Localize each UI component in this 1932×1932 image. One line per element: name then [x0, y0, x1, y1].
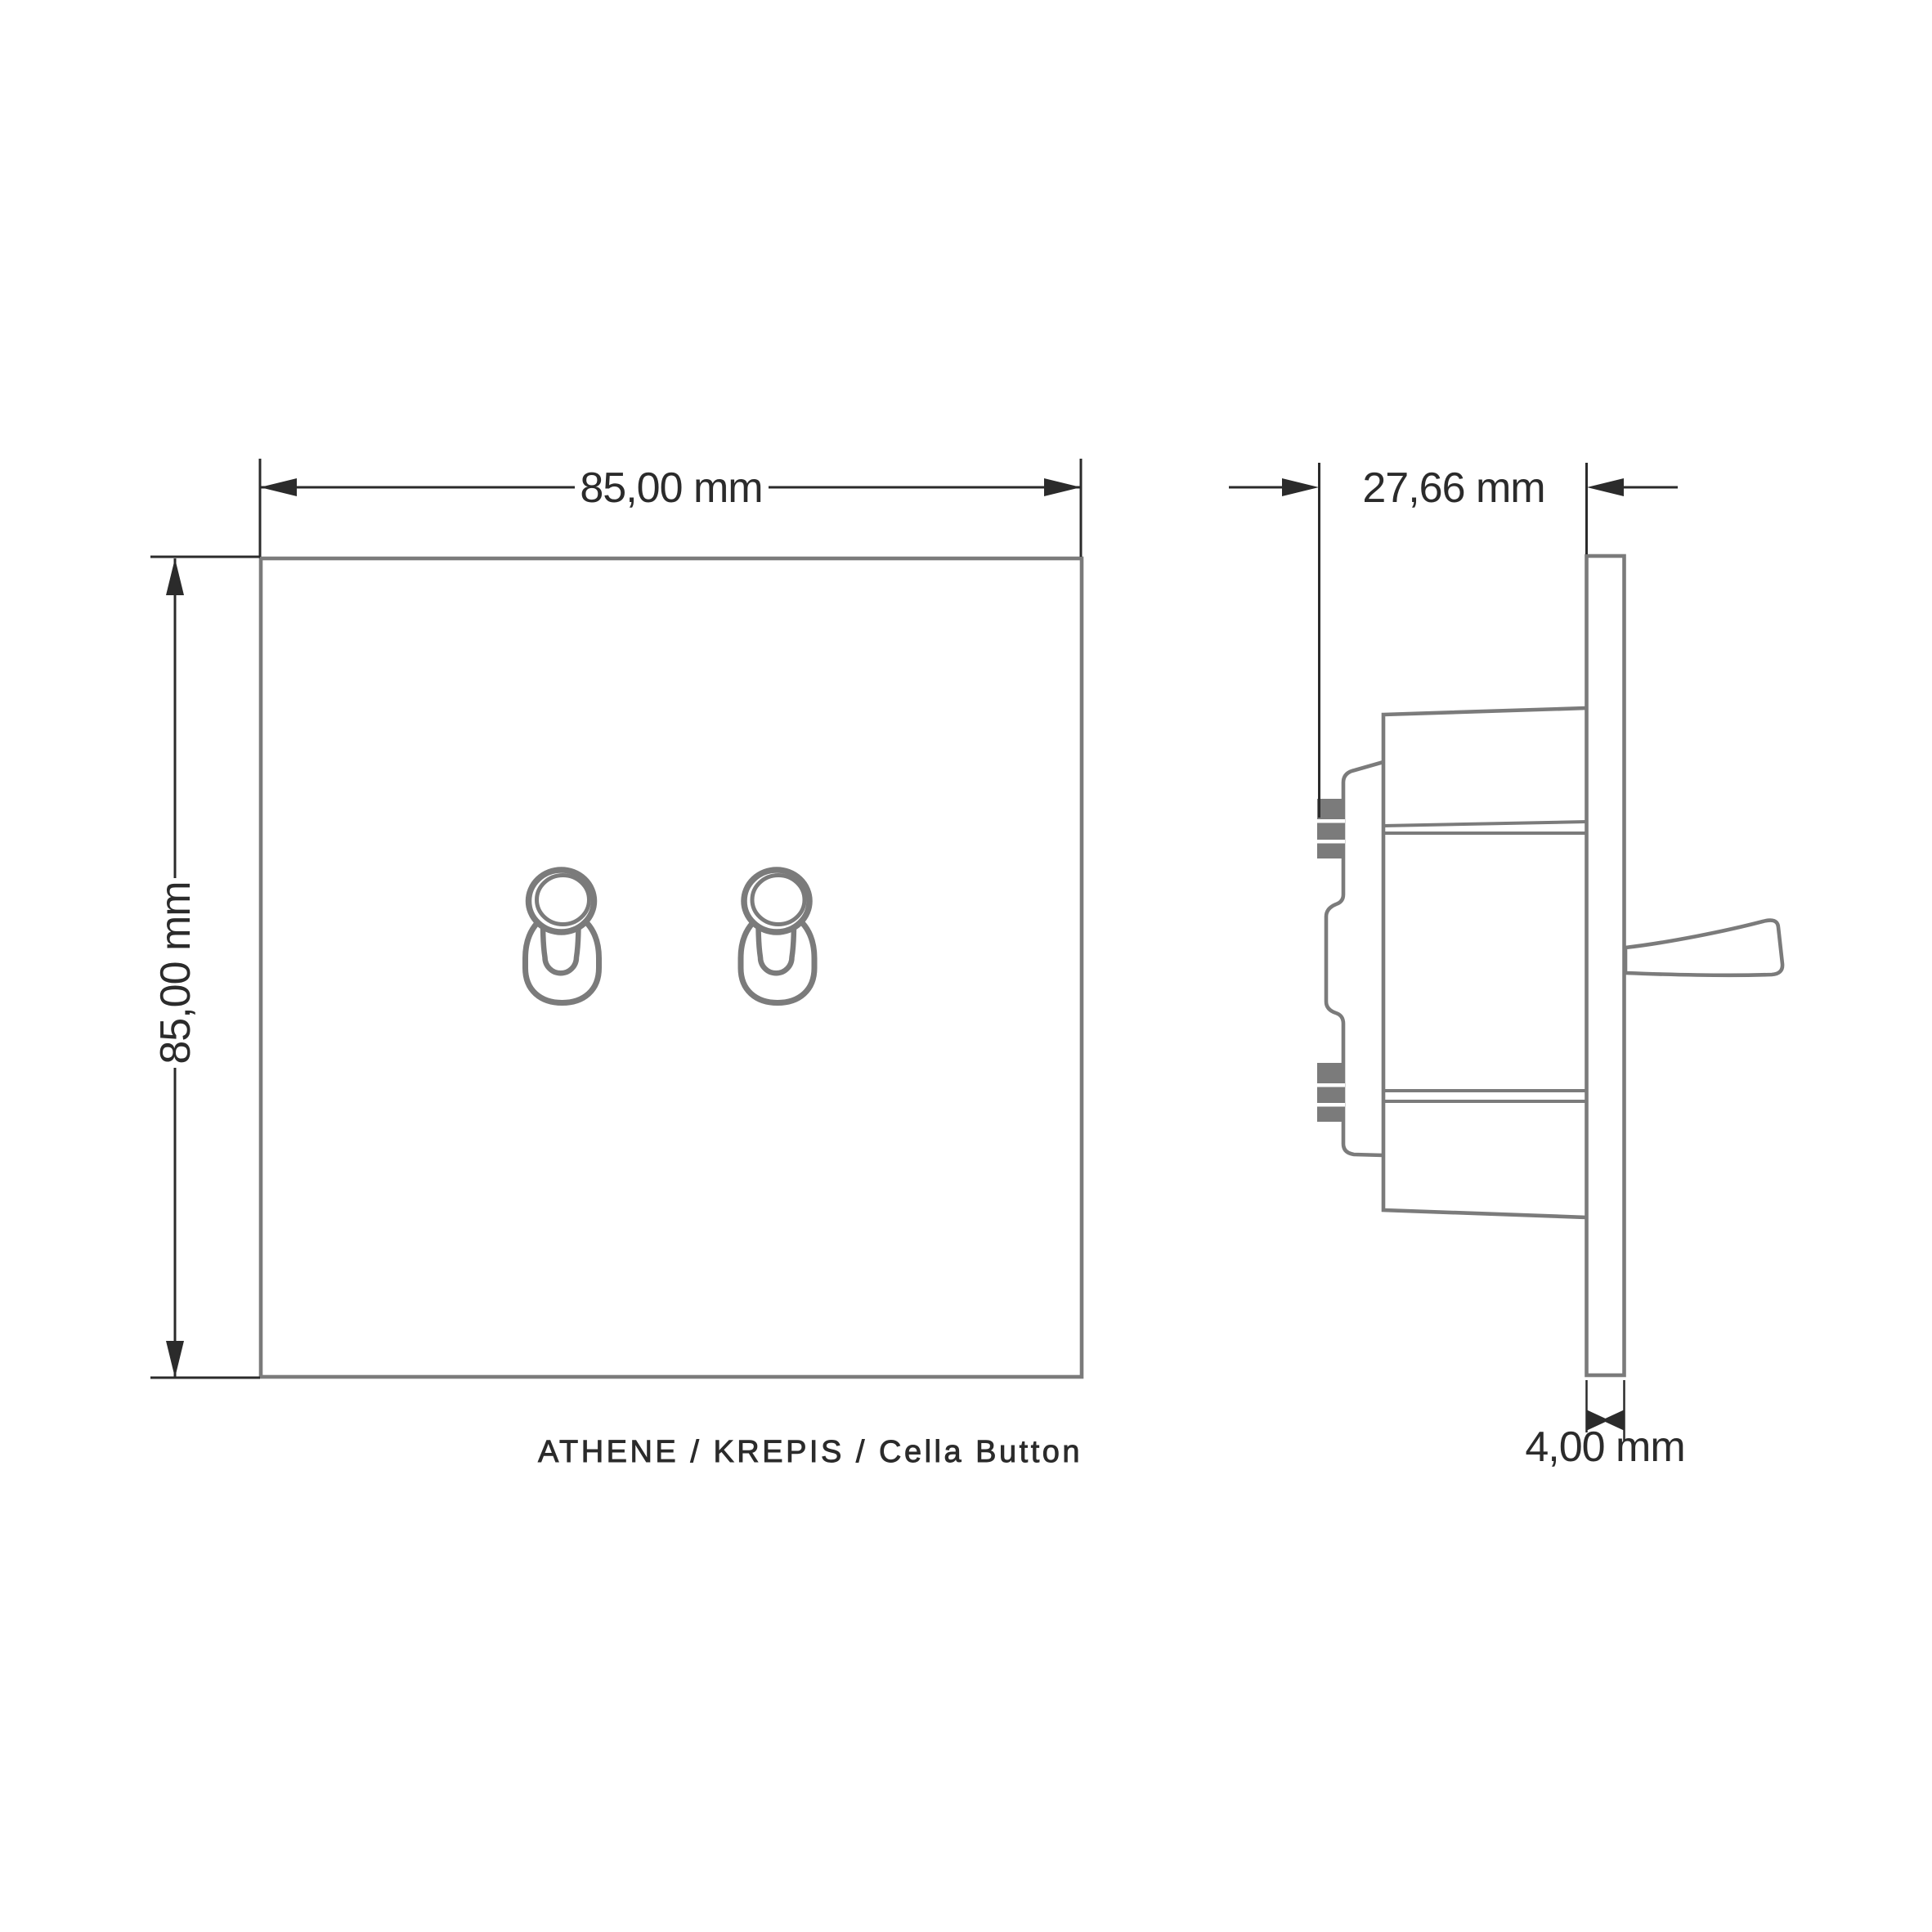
svg-text:85,00 mm: 85,00 mm: [580, 464, 762, 512]
svg-text:4,00 mm: 4,00 mm: [1525, 1423, 1684, 1471]
svg-text:27,66 mm: 27,66 mm: [1362, 464, 1544, 512]
svg-text:ATHENE / KREPIS / Cella Button: ATHENE / KREPIS / Cella Button: [538, 1435, 1083, 1469]
svg-text:85,00 mm: 85,00 mm: [152, 881, 199, 1064]
